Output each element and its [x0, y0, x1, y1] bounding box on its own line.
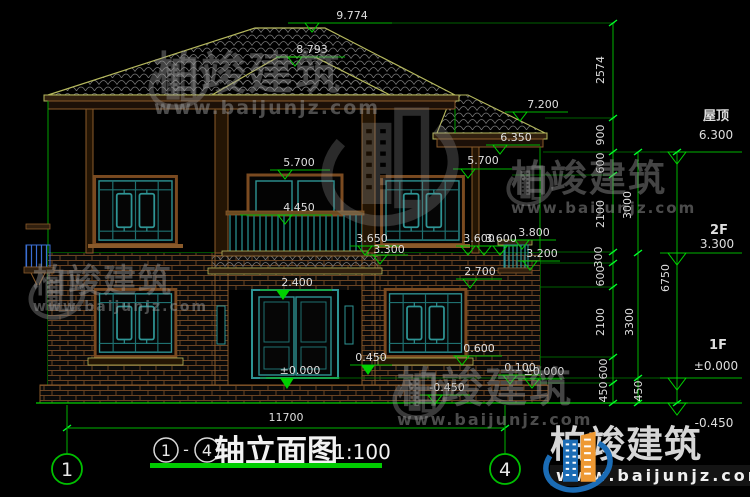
dim-col2-0: 3000 [621, 191, 634, 219]
elevation-drawing-canvas: 9.774 8.793 7.200 6.350 5.700 5.700 4.45… [0, 0, 750, 497]
title-scale: 1:100 [333, 440, 391, 464]
level-win2-right: 5.700 [467, 154, 499, 167]
dim-col1-3: 2100 [594, 200, 607, 228]
level-roof-peak: 9.774 [336, 9, 368, 22]
level-sill2-right: 3.600 [485, 232, 517, 245]
dim-col1-2: 600 [594, 153, 607, 174]
title-underline [150, 463, 382, 468]
title-axis-to: 4 [202, 441, 212, 460]
floor-level-1f: ±0.000 [694, 359, 738, 373]
level-eave-wing: 6.350 [500, 131, 532, 144]
brand-logo-icon [542, 426, 618, 494]
main-eave-band [44, 95, 459, 109]
drawing-title: 1 - 4 轴立面图 1:100 [150, 434, 391, 470]
level-eave-main: 7.200 [527, 98, 559, 111]
level-balcony-rail: 4.450 [283, 201, 315, 214]
level-ledge-top: 3.800 [518, 226, 550, 239]
level-ground-right: ±0.000 [524, 365, 565, 378]
dim-col1-7: 600 [597, 359, 610, 380]
dim-col2-1: 3300 [623, 308, 636, 336]
dim-col1-1: 900 [594, 125, 607, 146]
floor-label-1f: 1F [709, 338, 727, 353]
dim-col3: 6750 [659, 264, 672, 292]
title-axis-separator: - [183, 440, 189, 459]
window-2f-left [95, 176, 177, 244]
plinth [40, 385, 548, 403]
sill-1f-left [88, 358, 183, 365]
floor-level-roof: 6.300 [699, 128, 733, 142]
slit-window-right [345, 306, 353, 344]
level-door-top: 2.400 [281, 276, 313, 289]
level-sill1: 0.600 [463, 342, 495, 355]
axis-bubble-left: 1 [52, 454, 82, 484]
window-1f-right [385, 289, 466, 356]
level-stoop: 0.450 [355, 351, 387, 364]
level-canopy-low: 3.300 [373, 243, 405, 256]
dim-col2-2: 450 [632, 381, 645, 402]
level-grade: -0.450 [429, 381, 464, 394]
corner-trim-left [86, 109, 93, 253]
level-ground-door: ±0.000 [280, 364, 321, 377]
pilaster-left-2f [215, 109, 228, 253]
right-dimension-chain: 2574 900 600 2100 300 600 2100 600 450 3… [592, 56, 672, 403]
dim-col1-6: 2100 [594, 308, 607, 336]
dim-col1-0: 2574 [594, 56, 607, 84]
brand-logo-block: 柏竣建筑 www.baijunjz.com [542, 426, 750, 486]
level-lintel-1f: 2.700 [464, 265, 496, 278]
slit-window-left [217, 306, 225, 344]
floor-mark-labels: 屋顶 6.300 2F 3.300 1F ±0.000 -0.450 [694, 109, 738, 430]
axis-bubble-right: 4 [490, 454, 520, 484]
title-axis-from: 1 [161, 441, 171, 460]
dim-col1-4: 300 [592, 247, 605, 268]
entrance-canopy [208, 256, 382, 274]
window-1f-left [95, 289, 176, 356]
floor-level-2f: 3.300 [700, 237, 734, 251]
dim-col1-5: 600 [594, 266, 607, 287]
level-bay-peak: 8.793 [296, 43, 328, 56]
axis-bubble-left-number: 1 [61, 459, 73, 481]
level-ledge-bottom: 3.200 [526, 247, 558, 260]
total-width-dim: 11700 [269, 411, 304, 424]
dim-col1-8: 450 [597, 382, 610, 403]
level-win2-left: 5.700 [283, 156, 315, 169]
floor-label-2f: 2F [710, 223, 728, 238]
axis-bubble-right-number: 4 [499, 459, 511, 481]
floor-label-roof: 屋顶 [703, 109, 729, 124]
